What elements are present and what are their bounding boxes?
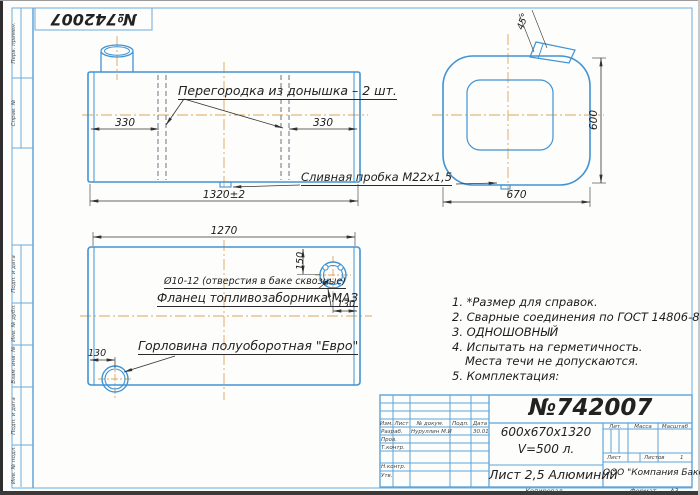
side-view-outline xyxy=(443,42,590,189)
dim-330-right: 330 xyxy=(303,118,343,130)
flange-label: Фланец топливозаборника МАЗ xyxy=(157,292,358,307)
title-listov-value: 1 xyxy=(680,455,684,461)
title-material: Лист 2,5 Алюминий xyxy=(489,468,603,482)
format-value: А3 xyxy=(670,488,679,495)
title-doc-number: №742007 xyxy=(489,396,692,421)
dim-670: 670 xyxy=(494,190,539,202)
title-razrab-name: Нуруллин М.И xyxy=(411,429,452,435)
dim-130-right: 130 xyxy=(337,300,355,310)
drawing-sheet: №742007 Перв. примен. Справ. № Подп. и д… xyxy=(0,0,700,495)
margin-label-inv-podl: Инв. № подл. xyxy=(11,445,17,485)
margin-label-inv-dubl: Инв. № дубл. xyxy=(11,303,17,343)
title-utv: Утв. xyxy=(381,473,393,479)
title-col-data: Дата xyxy=(471,421,489,427)
title-listov: Листов xyxy=(644,455,665,461)
title-col-massa: Масса xyxy=(628,424,658,430)
margin-label-podp-data-1: Подп. и дата xyxy=(11,247,17,301)
title-col-masshtab: Масштаб xyxy=(658,424,692,430)
kopiroval-label: Копировал xyxy=(489,488,599,495)
dim-1270: 1270 xyxy=(199,226,249,238)
dim-150: 150 xyxy=(296,252,306,270)
leader-lines xyxy=(124,99,497,372)
margin-label-podp-data-2: Подп. и дата xyxy=(11,389,17,443)
title-col-izm: Изм. xyxy=(380,421,393,427)
note-4: 4. Испытать на герметичность. xyxy=(452,341,642,354)
stamp-number: №742007 xyxy=(35,9,152,29)
euro-neck-label: Горловина полуоборотная "Евро" xyxy=(138,339,358,355)
title-col-list: Лист xyxy=(393,421,410,427)
title-col-docum: № докум. xyxy=(410,421,450,427)
format-label: Формат xyxy=(630,488,656,495)
note-3: 3. ОДНОШОВНЫЙ xyxy=(452,326,558,339)
margin-label-sprav-no: Справ. № xyxy=(11,80,17,146)
title-razrab-date: 30.01 xyxy=(473,429,489,435)
dim-330-left: 330 xyxy=(105,118,145,130)
note-2: 2. Сварные соединения по ГОСТ 14806-80. xyxy=(452,311,700,324)
dim-600: 600 xyxy=(589,110,601,130)
title-tkontr: Т.контр. xyxy=(381,445,405,451)
title-size: 600х670х1320 xyxy=(489,426,603,439)
title-company: ООО "Компания Бакор" xyxy=(603,469,692,479)
dim-130-left: 130 xyxy=(88,349,106,359)
holes-label: Ø10-12 (отверстия в баке сквозные) xyxy=(164,277,346,289)
dim-1320: 1320±2 xyxy=(194,190,254,202)
title-nkontr: Н.контр. xyxy=(381,464,406,470)
title-list: Лист xyxy=(607,455,621,461)
title-col-lit: Лит. xyxy=(603,424,628,430)
title-volume: V=500 л. xyxy=(489,443,603,456)
margin-label-vzam-inv: Взам. инв. № xyxy=(11,345,17,385)
title-razrab: Разраб. xyxy=(381,429,403,435)
title-col-podp: Подп. xyxy=(450,421,471,427)
title-prov: Пров. xyxy=(381,437,397,443)
note-4b: Места течи не допускаются. xyxy=(465,355,639,368)
partition-label: Перегородка из донышка – 2 шт. xyxy=(178,84,397,100)
drain-plug-label: Сливная пробка М22х1,5 xyxy=(301,171,452,186)
note-1: 1. *Размер для справок. xyxy=(452,296,598,309)
note-5: 5. Комплектация: xyxy=(452,370,559,383)
margin-label-perv-primen: Перв. примен. xyxy=(11,10,17,76)
